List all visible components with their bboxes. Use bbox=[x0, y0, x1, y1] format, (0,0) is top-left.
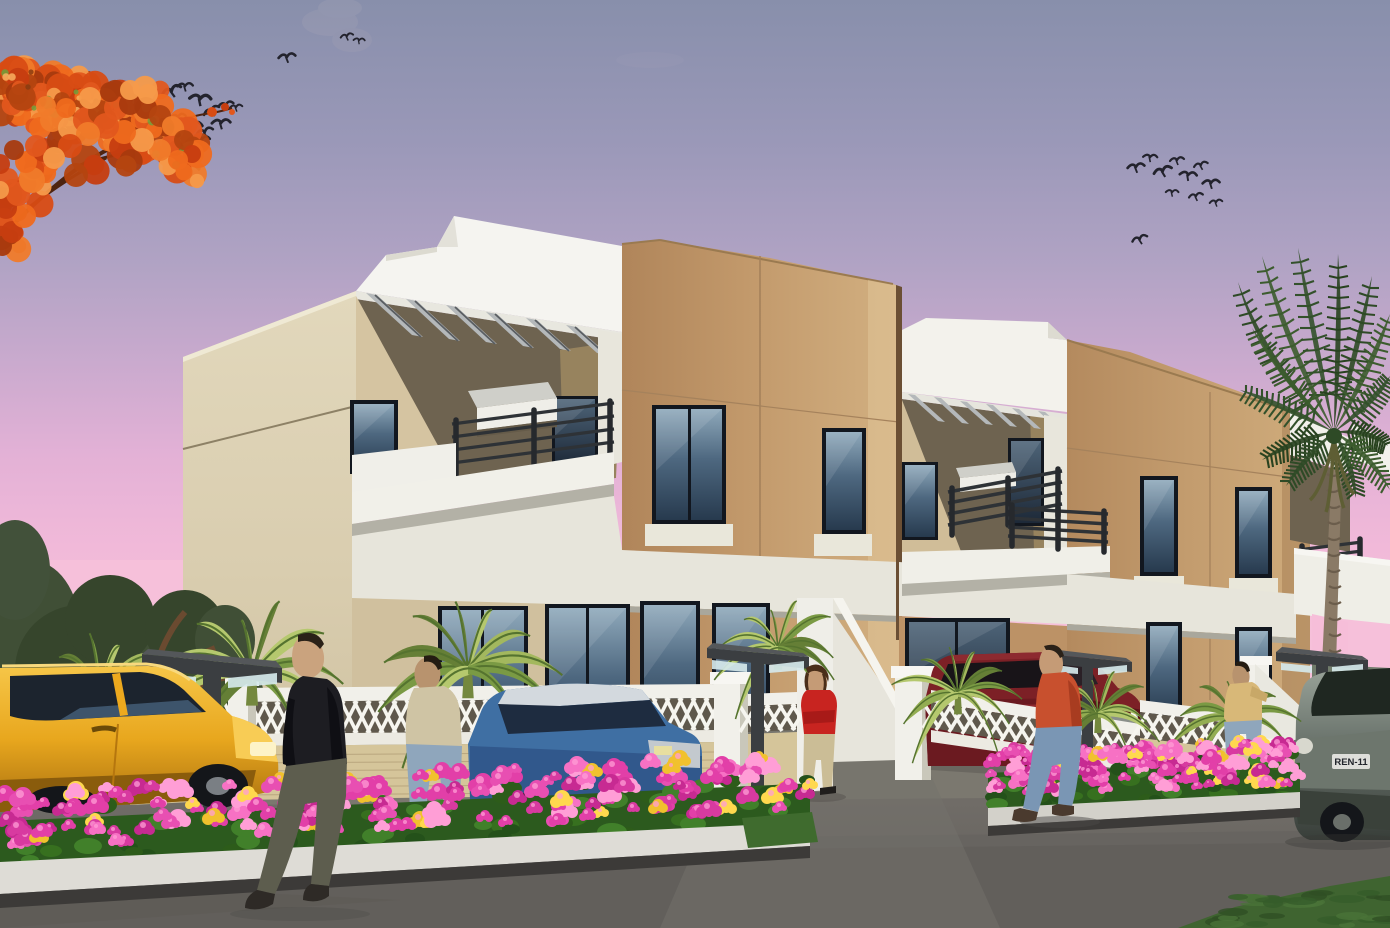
svg-text:REN-11: REN-11 bbox=[1334, 757, 1368, 768]
